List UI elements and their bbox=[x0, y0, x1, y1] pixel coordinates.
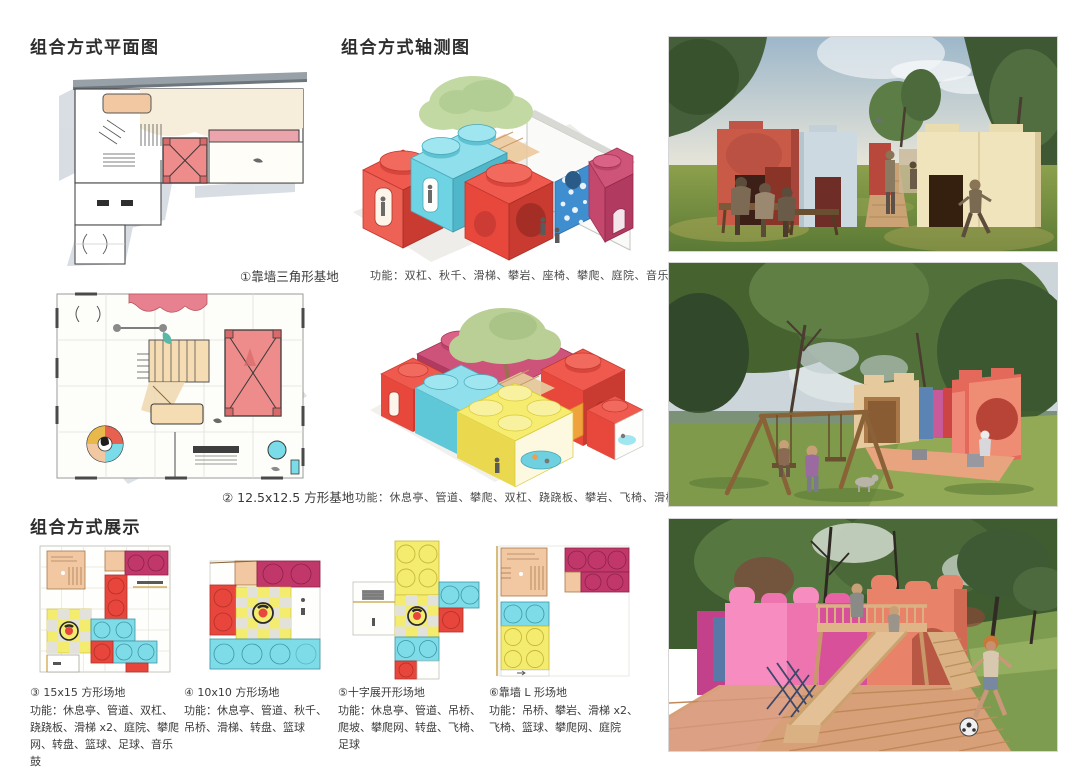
legend-3-functions: 功能：休息亭、管道、双杠、跷跷板、滑梯 x2、庭院、攀爬网、转盘、篮球、足球、音… bbox=[30, 704, 179, 768]
legend-4-caption: ④ 10x10 方形场地 bbox=[184, 684, 334, 701]
axon-section-title: 组合方式轴测图 bbox=[341, 33, 471, 58]
legend-3-caption: ③ 15x15 方形场地 bbox=[30, 684, 182, 701]
plan1-caption: ①靠墙三角形基地 bbox=[240, 266, 339, 285]
legend-5-functions: 功能：休息亭、管道、吊桥、爬坡、攀爬网、转盘、飞椅、足球 bbox=[338, 704, 481, 751]
legend-6-functions: 功能：吊桥、攀岩、滑梯 x2、飞椅、篮球、攀爬网、庭院 bbox=[489, 704, 638, 734]
plan-drawing-2 bbox=[45, 288, 320, 486]
plan-drawing-1 bbox=[45, 68, 315, 266]
legend-5-caption: ⑤十字展开形场地 bbox=[338, 684, 486, 701]
site-diagram-3 bbox=[35, 543, 175, 675]
axon1-functions: 功能：双杠、秋千、滑梯、攀岩、座椅、攀爬、庭院、音乐鼓 bbox=[370, 267, 681, 283]
plan-section-title: 组合方式平面图 bbox=[30, 33, 160, 58]
plan2-caption: ② 12.5x12.5 方形基地 bbox=[222, 487, 354, 506]
legend-4-functions: 功能：休息亭、管道、秋千、吊桥、滑梯、转盘、篮球 bbox=[184, 704, 327, 734]
site-diagram-5 bbox=[340, 538, 480, 680]
legend-3: ③ 15x15 方形场地 功能：休息亭、管道、双杠、跷跷板、滑梯 x2、庭院、攀… bbox=[30, 684, 182, 769]
render-photo-park-benches bbox=[668, 36, 1058, 252]
axon-drawing-2 bbox=[345, 292, 645, 487]
render-photo-swings bbox=[668, 262, 1058, 507]
presentation-board: 组合方式平面图 组合方式轴测图 组合方式展示 bbox=[0, 0, 1080, 769]
site-diagram-4 bbox=[195, 556, 335, 674]
legend-6-caption: ⑥靠墙 L 形场地 bbox=[489, 684, 647, 701]
site-diagram-6 bbox=[487, 538, 642, 680]
legend-6: ⑥靠墙 L 形场地 功能：吊桥、攀岩、滑梯 x2、飞椅、篮球、攀爬网、庭院 bbox=[489, 684, 647, 736]
legend-4: ④ 10x10 方形场地 功能：休息亭、管道、秋千、吊桥、滑梯、转盘、篮球 bbox=[184, 684, 334, 736]
axon-drawing-1 bbox=[335, 62, 635, 264]
display-section-title: 组合方式展示 bbox=[30, 513, 141, 538]
render-photo-slide-deck bbox=[668, 518, 1058, 752]
legend-5: ⑤十字展开形场地 功能：休息亭、管道、吊桥、爬坡、攀爬网、转盘、飞椅、足球 bbox=[338, 684, 486, 753]
